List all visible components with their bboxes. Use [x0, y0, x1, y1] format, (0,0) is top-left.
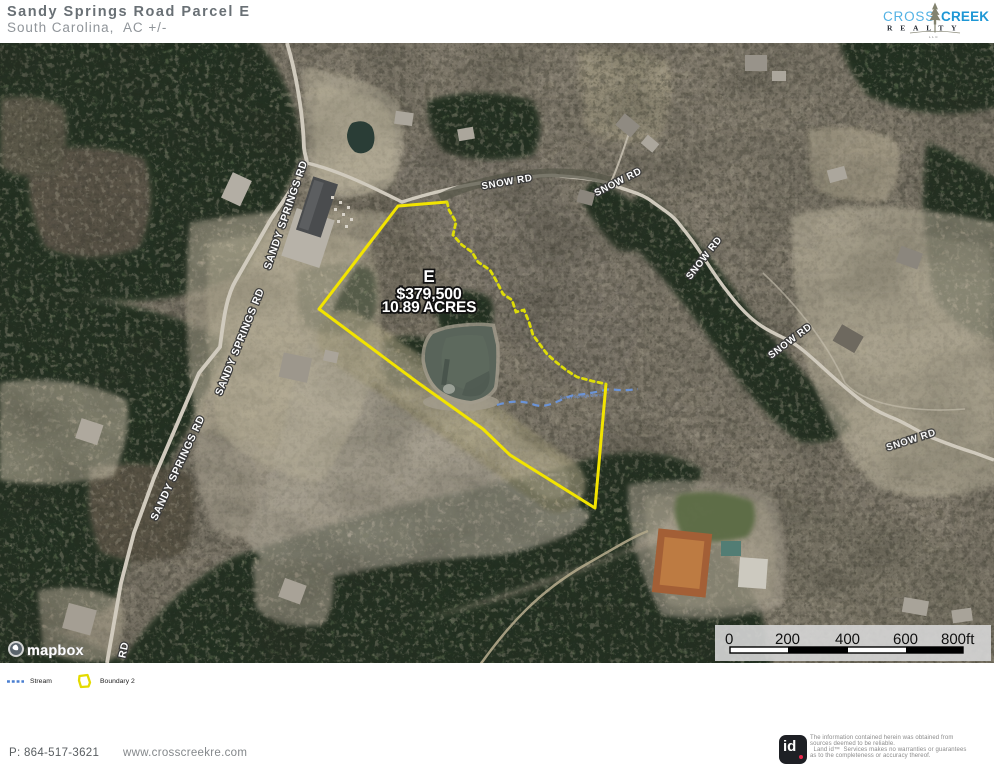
- svg-text:CREEK: CREEK: [941, 9, 989, 24]
- svg-text:10.89 ACRES: 10.89 ACRES: [382, 299, 477, 316]
- svg-text:800ft: 800ft: [941, 631, 975, 648]
- svg-text:E: E: [423, 267, 434, 286]
- svg-text:mapbox: mapbox: [27, 643, 84, 659]
- svg-text:600: 600: [893, 631, 918, 648]
- svg-text:0: 0: [725, 631, 733, 648]
- svg-text:400: 400: [835, 631, 860, 648]
- svg-text:CROSS: CROSS: [883, 9, 935, 24]
- svg-text:LLC: LLC: [929, 35, 939, 39]
- svg-text:200: 200: [775, 631, 800, 648]
